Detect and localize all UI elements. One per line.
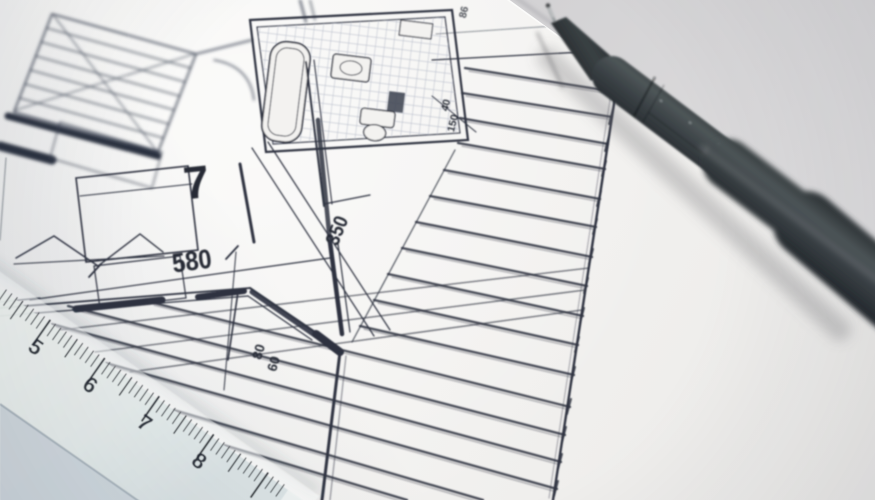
- photo-vignette: [0, 0, 875, 500]
- photo-blueprint-scene: 7 580 350 80 60 40 150 86 5 6 7 8: [0, 0, 875, 500]
- photo-canvas: 7 580 350 80 60 40 150 86 5 6 7 8: [0, 0, 875, 500]
